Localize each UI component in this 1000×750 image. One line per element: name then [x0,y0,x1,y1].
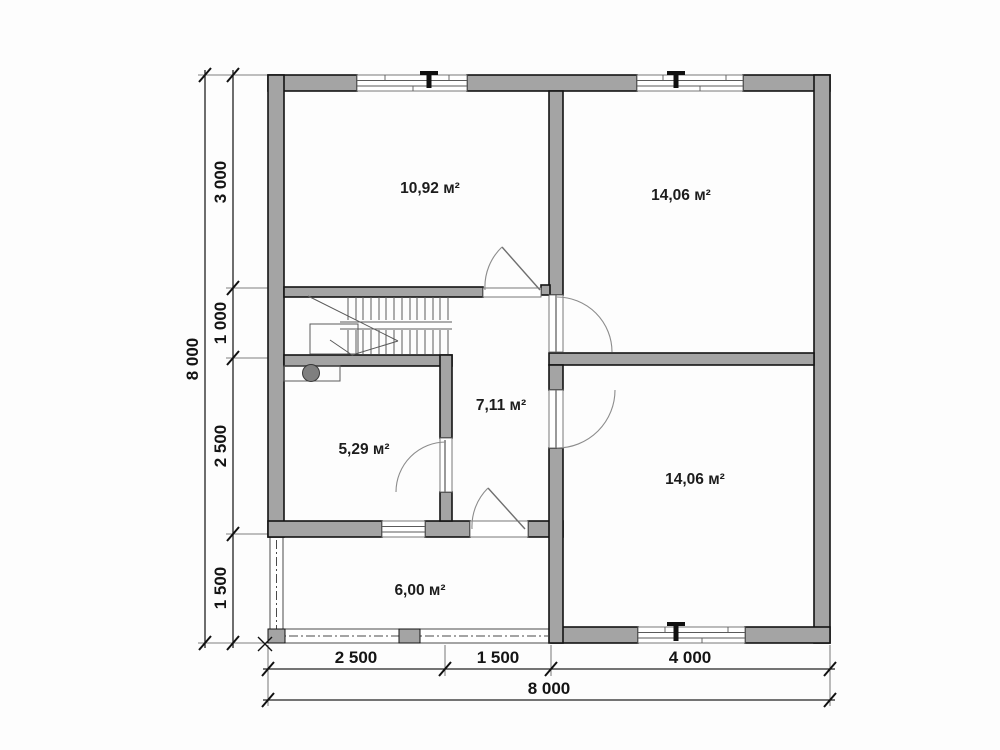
room-label-hallway: 7,11 м² [476,397,526,414]
dim-label-left-1000: 1 000 [211,302,230,345]
dimension-lines-left: 3 000 1 000 2 500 1 500 8 000 [183,68,239,650]
dim-label-left-3000: 3 000 [211,161,230,204]
terrace-post-corner [268,629,285,643]
window-small-south [382,521,425,537]
window-top-right [637,71,743,91]
dim-label-bottom-total-8000: 8 000 [528,679,571,698]
floor-plan-drawing: 3 000 1 000 2 500 1 500 8 000 2 500 1 50… [0,0,1000,750]
dim-label-bottom-1500: 1 500 [477,648,520,667]
door-stair-hall [483,247,541,297]
room-label-small-room: 5,29 м² [338,441,389,458]
door-top-right-room [549,295,612,352]
interior-walls [284,91,814,643]
terrace-corner-x-marker [258,637,272,651]
terrace-post-middle [399,629,420,643]
column-marker [284,365,340,382]
stair-direction-line [308,296,398,355]
floor-plan-page: 3 000 1 000 2 500 1 500 8 000 2 500 1 50… [0,0,1000,750]
window-bottom-right [638,622,745,643]
window-top-left [357,71,467,91]
dim-label-bottom-2500: 2 500 [335,648,378,667]
dimension-lines-bottom: 2 500 1 500 4 000 8 000 [262,648,836,707]
room-label-top-right: 14,06 м² [651,187,711,204]
door-small-room [396,438,452,492]
room-label-terrace: 6,00 м² [394,582,445,599]
staircase [308,296,452,355]
room-label-top-left: 10,92 м² [400,180,460,197]
door-bottom-right-room [549,390,615,448]
dimension-extension-lines [198,75,830,706]
dim-label-left-1500: 1 500 [211,567,230,610]
dim-label-left-2500: 2 500 [211,425,230,468]
dim-label-bottom-4000: 4 000 [669,648,712,667]
dim-label-left-total-8000: 8 000 [183,338,202,381]
door-terrace-entry [470,488,528,537]
room-label-bottom-right: 14,06 м² [665,471,725,488]
